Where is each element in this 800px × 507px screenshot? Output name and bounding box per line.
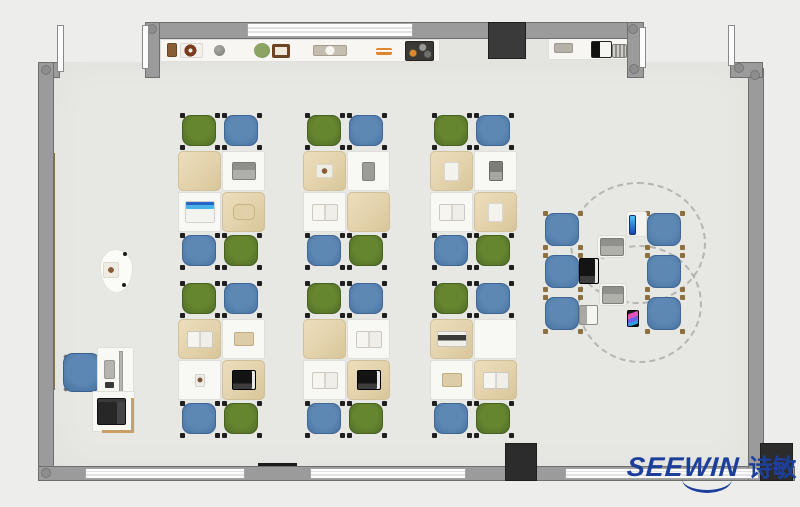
door-leaf bbox=[142, 25, 149, 69]
chair-feet bbox=[543, 253, 548, 258]
chair-feet bbox=[432, 401, 437, 406]
student-chair-blue bbox=[476, 115, 510, 146]
student-chair-green bbox=[307, 115, 341, 146]
shelf-item-plant bbox=[254, 43, 270, 58]
chair-feet bbox=[432, 233, 437, 238]
desk-item-photo bbox=[195, 374, 205, 387]
student-chair-green bbox=[182, 115, 216, 146]
student-chair-green bbox=[434, 283, 468, 314]
chair-feet bbox=[305, 233, 310, 238]
chair-feet bbox=[347, 281, 352, 286]
desk-item-laptop-dark bbox=[232, 370, 256, 390]
chair-feet bbox=[543, 211, 548, 216]
student-chair-green bbox=[349, 403, 383, 434]
student-chair-blue bbox=[349, 115, 383, 146]
student-chair-blue bbox=[476, 283, 510, 314]
column-pillar bbox=[505, 443, 537, 481]
chair-feet bbox=[543, 295, 548, 300]
student-chair-green bbox=[476, 235, 510, 266]
desk-item-book-open bbox=[439, 204, 465, 221]
shelf-item-frame bbox=[272, 44, 290, 58]
chair-feet bbox=[180, 113, 185, 118]
student-chair-green bbox=[307, 283, 341, 314]
shelf-item-toolbox bbox=[405, 41, 434, 61]
discussion-chair bbox=[647, 255, 681, 288]
desk-item-laptop-gray bbox=[232, 162, 256, 180]
discussion-item-laptop-gray bbox=[600, 238, 624, 256]
logo-swoosh-icon bbox=[682, 479, 732, 493]
chair-feet bbox=[474, 233, 479, 238]
door-leaf bbox=[57, 25, 64, 72]
desk-item-laptop-blue bbox=[185, 201, 215, 223]
chair-feet bbox=[347, 233, 352, 238]
office-chair bbox=[63, 353, 101, 392]
desk-item-book-tan bbox=[234, 332, 254, 346]
student-chair-blue bbox=[434, 403, 468, 434]
discussion-item-laptop-gray bbox=[602, 286, 624, 304]
student-chair-green bbox=[349, 235, 383, 266]
discussion-item-phone-colorful bbox=[627, 310, 639, 327]
shelf-item-device-bw bbox=[591, 41, 612, 58]
desk-item-paper-white bbox=[444, 162, 459, 181]
podium-dot bbox=[123, 252, 127, 256]
chair-feet bbox=[432, 113, 437, 118]
discussion-chair bbox=[647, 213, 681, 246]
student-desk-covered bbox=[178, 151, 221, 191]
discussion-chair bbox=[647, 297, 681, 330]
student-chair-green bbox=[476, 403, 510, 434]
desk-item-tablet-dark bbox=[489, 161, 503, 181]
student-chair-blue bbox=[182, 235, 216, 266]
wall-joint bbox=[629, 64, 639, 74]
printer bbox=[97, 398, 126, 425]
chair-feet bbox=[305, 281, 310, 286]
shelf-item-donut-tray bbox=[180, 43, 203, 58]
chair-feet bbox=[347, 401, 352, 406]
desk-item-tray-items bbox=[437, 331, 467, 347]
teacher-desk bbox=[97, 347, 134, 394]
chair-feet bbox=[222, 401, 227, 406]
student-chair-blue bbox=[434, 235, 468, 266]
chair-feet bbox=[474, 113, 479, 118]
student-desk-covered bbox=[347, 192, 390, 232]
student-chair-blue bbox=[349, 283, 383, 314]
chair-feet bbox=[305, 401, 310, 406]
monitor bbox=[119, 351, 123, 392]
door-leaf bbox=[728, 25, 735, 66]
shelf-item-box-brown bbox=[167, 43, 177, 57]
desk-partition bbox=[131, 398, 134, 432]
chair-feet bbox=[645, 295, 650, 300]
window bbox=[247, 23, 413, 37]
window bbox=[310, 468, 466, 479]
wall-segment bbox=[38, 62, 54, 481]
discussion-item-laptop-dark bbox=[579, 258, 599, 284]
desk-item-paper-brown bbox=[316, 164, 333, 178]
wall-segment bbox=[748, 68, 764, 481]
shelf-item-cup-tray bbox=[313, 45, 347, 56]
student-chair-green bbox=[434, 115, 468, 146]
discussion-item-tablet-blue bbox=[629, 215, 636, 235]
wall-joint bbox=[41, 468, 51, 478]
chair-feet bbox=[347, 113, 352, 118]
chair-feet bbox=[180, 401, 185, 406]
shelf-item-orange-lines bbox=[376, 48, 392, 55]
student-chair-blue bbox=[182, 403, 216, 434]
chair-feet bbox=[222, 113, 227, 118]
shelf-item-sphere bbox=[214, 45, 225, 56]
student-chair-blue bbox=[224, 283, 258, 314]
brand-logo-cn: 诗敏 bbox=[749, 448, 797, 483]
desk-small-item bbox=[105, 382, 114, 388]
chair-feet bbox=[474, 281, 479, 286]
desk-item-paper-white bbox=[488, 203, 503, 222]
desk-item-book-open bbox=[187, 331, 213, 348]
student-desk-covered bbox=[303, 319, 346, 359]
chair-feet bbox=[222, 233, 227, 238]
desk-item-book-open bbox=[312, 204, 338, 221]
discussion-chair bbox=[545, 255, 579, 288]
desk-item-book-open bbox=[312, 372, 338, 389]
chair-feet bbox=[222, 281, 227, 286]
chair-feet bbox=[645, 253, 650, 258]
podium-item bbox=[103, 262, 119, 278]
column-pillar bbox=[488, 22, 526, 59]
desk-item-book-open bbox=[483, 372, 509, 389]
discussion-chair bbox=[545, 297, 579, 330]
chair-feet bbox=[180, 281, 185, 286]
floorplan-render: SEEWIN 诗敏 bbox=[0, 0, 800, 507]
wall-joint bbox=[628, 24, 638, 34]
wall-joint bbox=[41, 65, 51, 75]
student-chair-green bbox=[224, 235, 258, 266]
chair-feet bbox=[305, 113, 310, 118]
window bbox=[85, 468, 245, 479]
desk-partition bbox=[102, 430, 134, 433]
student-chair-blue bbox=[307, 403, 341, 434]
wall-joint bbox=[734, 63, 744, 73]
desk-item-book-open bbox=[356, 331, 382, 348]
brand-logo: SEEWIN 诗敏 bbox=[627, 448, 797, 483]
chair-feet bbox=[432, 281, 437, 286]
discussion-item-laptop-small bbox=[579, 305, 598, 325]
shelf-item-tray bbox=[554, 43, 573, 53]
desk-item-laptop-dark bbox=[357, 370, 381, 390]
student-desk bbox=[474, 319, 517, 359]
student-chair-blue bbox=[224, 115, 258, 146]
keyboard bbox=[104, 360, 115, 379]
door-leaf bbox=[639, 27, 646, 68]
student-chair-blue bbox=[307, 235, 341, 266]
chair-feet bbox=[180, 233, 185, 238]
chair-feet bbox=[474, 401, 479, 406]
desk-item-tablet-gray bbox=[362, 162, 375, 181]
desk-item-bag-tan bbox=[233, 204, 255, 220]
desk-item-book-tan bbox=[442, 373, 462, 387]
shelf-item-grill bbox=[612, 44, 627, 58]
podium-dot bbox=[122, 283, 126, 287]
student-chair-green bbox=[224, 403, 258, 434]
discussion-chair bbox=[545, 213, 579, 246]
student-chair-green bbox=[182, 283, 216, 314]
wall-joint bbox=[750, 70, 760, 80]
